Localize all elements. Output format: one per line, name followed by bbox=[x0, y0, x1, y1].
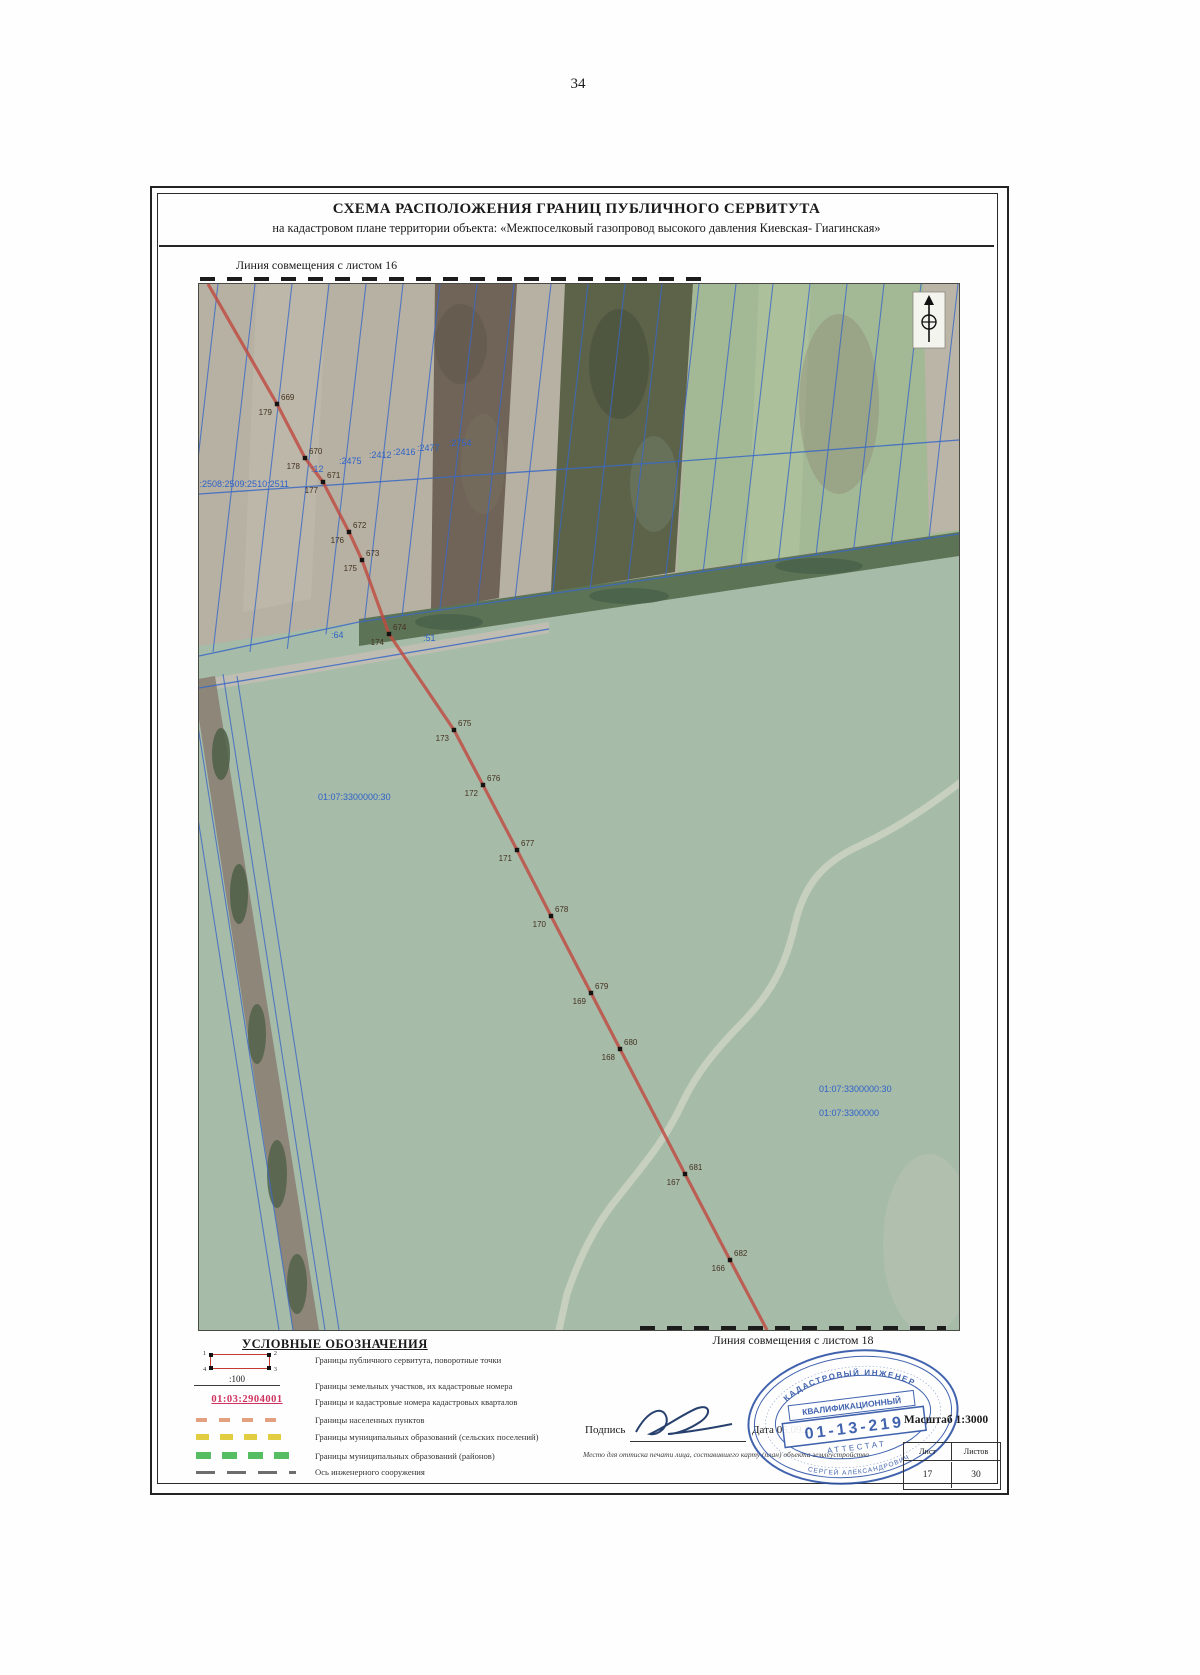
legend-label: Границы муниципальных образований (сельс… bbox=[315, 1432, 538, 1442]
point-number-label: 167 bbox=[667, 1178, 681, 1187]
title-block: СХЕМА РАСПОЛОЖЕНИЯ ГРАНИЦ ПУБЛИЧНОГО СЕР… bbox=[159, 195, 994, 247]
legend-row-settlements: Границы населенных пунктов bbox=[188, 1412, 628, 1430]
satellite-map: 6691796701786711776721766731756741746751… bbox=[199, 284, 959, 1330]
point-number-label: 172 bbox=[465, 789, 479, 798]
turning-point bbox=[481, 783, 485, 787]
legend-label: Границы населенных пунктов bbox=[315, 1415, 424, 1425]
turning-point bbox=[728, 1258, 732, 1262]
terrain-texture bbox=[589, 588, 669, 604]
point-id-label: 682 bbox=[734, 1249, 748, 1258]
point-number-label: 171 bbox=[499, 854, 513, 863]
legend-heading: УСЛОВНЫЕ ОБОЗНАЧЕНИЯ bbox=[242, 1337, 428, 1352]
terrain-texture bbox=[287, 1254, 307, 1314]
cadastral-number-label: :51:2508:2509:2510:2511 bbox=[199, 479, 289, 489]
sheets-header: Листов bbox=[952, 1443, 1000, 1461]
turning-point bbox=[549, 914, 553, 918]
turning-point bbox=[618, 1047, 622, 1051]
turning-point bbox=[275, 402, 279, 406]
turning-point bbox=[589, 991, 593, 995]
terrain-texture bbox=[212, 728, 230, 780]
legend-label: Границы и кадастровые номера кадастровых… bbox=[315, 1397, 517, 1407]
signature-label: Подпись bbox=[585, 1424, 625, 1436]
point-number-label: 176 bbox=[331, 536, 345, 545]
legend-label: Границы земельных участков, их кадастров… bbox=[315, 1381, 512, 1391]
cadastral-number-label: :2416 bbox=[393, 447, 416, 457]
point-id-label: 669 bbox=[281, 393, 295, 402]
engineering-axis-symbol bbox=[196, 1471, 296, 1474]
point-number-label: 174 bbox=[371, 638, 385, 647]
legend-label: Ось инженерного сооружения bbox=[315, 1467, 425, 1477]
settlement-border-symbol bbox=[196, 1418, 288, 1422]
cadastral-number-label: :51 bbox=[423, 633, 436, 643]
point-id-label: 673 bbox=[366, 549, 380, 558]
point-number-label: 166 bbox=[712, 1264, 726, 1273]
turning-point bbox=[303, 456, 307, 460]
point-id-label: 674 bbox=[393, 623, 407, 632]
cadastral-map: 6691796701786711776721766731756741746751… bbox=[198, 283, 960, 1331]
turning-point bbox=[321, 480, 325, 484]
legend-label: Границы публичного сервитута, поворотные… bbox=[315, 1355, 501, 1365]
cadastral-number-label: 01:07:3300000 bbox=[819, 1108, 879, 1118]
point-number-label: 175 bbox=[344, 564, 358, 573]
cadastral-number-label: 01:07:3300000:30 bbox=[819, 1084, 892, 1094]
point-id-label: 670 bbox=[309, 447, 323, 456]
point-number-label: 169 bbox=[573, 997, 587, 1006]
point-id-label: 679 bbox=[595, 982, 609, 991]
sheet-number: 17 bbox=[904, 1462, 952, 1488]
terrain-texture bbox=[630, 436, 678, 532]
legend-row-servitude: 1 2 4 3 Границы публичного сервитута, по… bbox=[188, 1352, 628, 1370]
point-number-label: 168 bbox=[602, 1053, 616, 1062]
parcel-symbol: :100 bbox=[194, 1374, 280, 1386]
terrain-texture bbox=[267, 1140, 287, 1208]
map-scale: Масштаб 1:3000 bbox=[890, 1414, 1002, 1426]
servitude-symbol: 1 2 4 3 bbox=[188, 1352, 306, 1370]
quarter-number-symbol: 01:03:2904001 bbox=[188, 1394, 306, 1405]
document-title: СХЕМА РАСПОЛОЖЕНИЯ ГРАНИЦ ПУБЛИЧНОГО СЕР… bbox=[159, 201, 994, 218]
legend-label: Границы муниципальных образований (район… bbox=[315, 1451, 495, 1461]
cadastral-number-label: :12 bbox=[311, 464, 324, 474]
terrain-texture bbox=[461, 414, 505, 514]
point-number-label: 177 bbox=[305, 486, 319, 495]
terrain-texture bbox=[230, 864, 248, 924]
document-subtitle: на кадастровом плане территории объекта:… bbox=[159, 221, 994, 236]
point-id-label: 672 bbox=[353, 521, 367, 530]
municipal-district-border-symbol bbox=[196, 1452, 292, 1459]
sheet-header: Лист bbox=[904, 1443, 952, 1461]
turning-point bbox=[387, 632, 391, 636]
sheets-total: 30 bbox=[952, 1462, 1000, 1488]
point-id-label: 677 bbox=[521, 839, 535, 848]
point-id-label: 680 bbox=[624, 1038, 638, 1047]
sheet-table: Лист Листов 17 30 bbox=[903, 1442, 1001, 1490]
turning-point bbox=[452, 728, 456, 732]
terrain-texture bbox=[799, 314, 879, 494]
cadastral-number-label: :2754 bbox=[449, 438, 472, 448]
terrain-texture bbox=[775, 558, 863, 574]
point-id-label: 678 bbox=[555, 905, 569, 914]
point-id-label: 676 bbox=[487, 774, 501, 783]
terrain-texture bbox=[589, 309, 649, 419]
municipal-settlement-border-symbol bbox=[196, 1434, 292, 1440]
cadastral-number-label: 01:07:3300000:30 bbox=[318, 792, 391, 802]
point-id-label: 675 bbox=[458, 719, 472, 728]
page-number: 34 bbox=[548, 76, 608, 93]
terrain-texture bbox=[435, 304, 487, 384]
legend-row-quarters: 01:03:2904001 Границы и кадастровые номе… bbox=[188, 1394, 628, 1412]
cadastral-number-label: :2477 bbox=[417, 443, 440, 453]
turning-point bbox=[360, 558, 364, 562]
north-arrow-icon bbox=[913, 292, 945, 348]
point-number-label: 179 bbox=[259, 408, 273, 417]
point-number-label: 170 bbox=[533, 920, 547, 929]
turning-point bbox=[683, 1172, 687, 1176]
cadastral-number-label: :2412 bbox=[369, 450, 392, 460]
terrain-texture bbox=[415, 614, 483, 630]
turning-point bbox=[515, 848, 519, 852]
terrain-texture bbox=[248, 1004, 266, 1064]
match-line-top-label: Линия совмещения с листом 16 bbox=[236, 258, 397, 273]
match-line-top-dashes bbox=[200, 277, 708, 281]
point-number-label: 178 bbox=[287, 462, 301, 471]
match-line-bottom-dashes bbox=[640, 1326, 946, 1330]
point-number-label: 173 bbox=[436, 734, 450, 743]
handwritten-signature bbox=[628, 1398, 748, 1444]
legend-row-axis: Ось инженерного сооружения bbox=[188, 1464, 628, 1482]
cadastral-number-label: :2475 bbox=[339, 456, 362, 466]
cadastral-number-label: :64 bbox=[331, 630, 344, 640]
scanned-document-page: 34 СХЕМА РАСПОЛОЖЕНИЯ ГРАНИЦ ПУБЛИЧНОГО … bbox=[0, 0, 1200, 1675]
point-id-label: 671 bbox=[327, 471, 341, 480]
point-id-label: 681 bbox=[689, 1163, 703, 1172]
legend-row-municipal-settlements: Границы муниципальных образований (сельс… bbox=[188, 1429, 628, 1447]
turning-point bbox=[347, 530, 351, 534]
signature-line bbox=[630, 1441, 746, 1442]
